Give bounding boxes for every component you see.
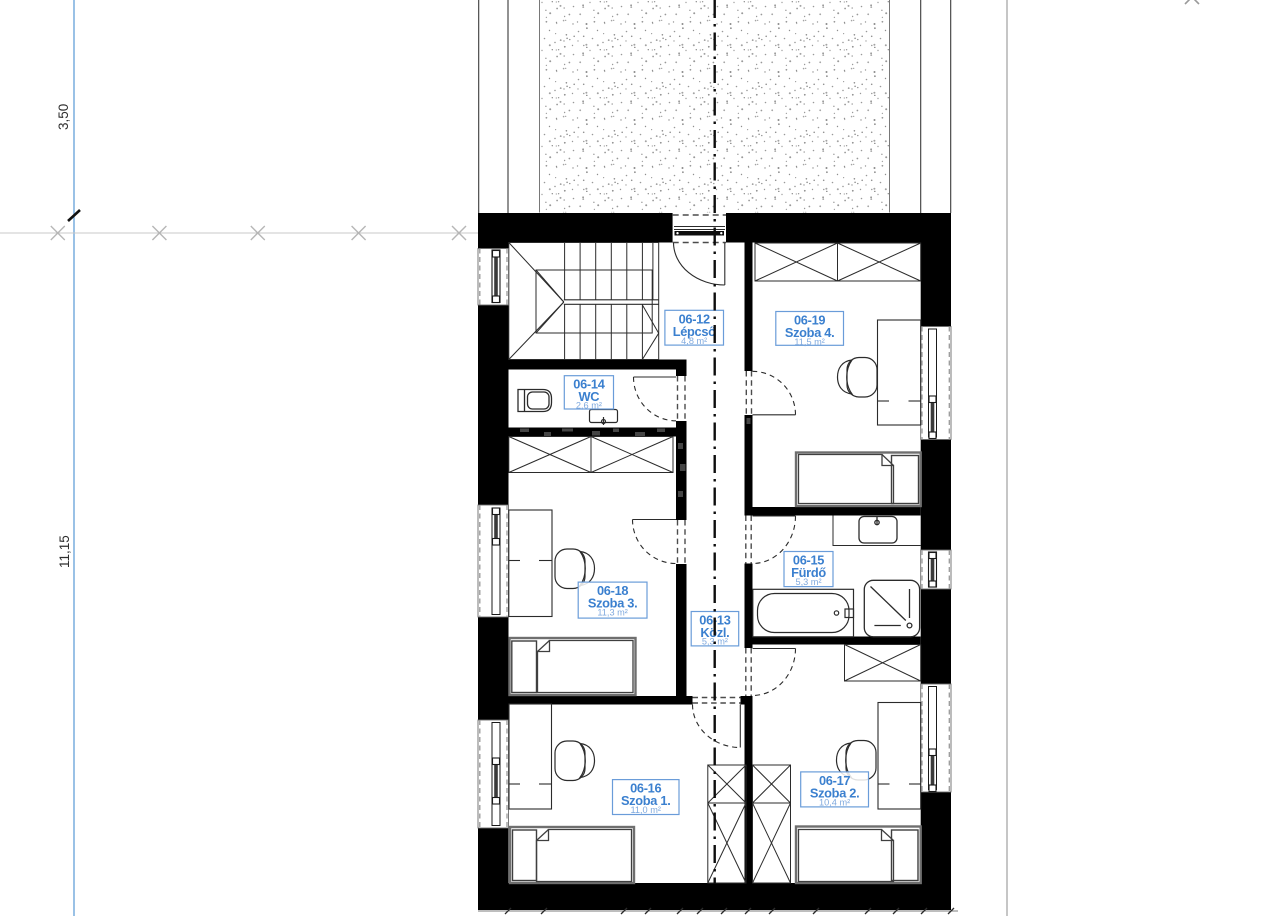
svg-text:4,8 m²: 4,8 m² (681, 336, 707, 346)
svg-text:10,4 m²: 10,4 m² (819, 797, 850, 807)
svg-text:11,0 m²: 11,0 m² (630, 805, 660, 815)
svg-text:3,50: 3,50 (56, 104, 71, 130)
svg-text:5,3 m²: 5,3 m² (795, 577, 821, 587)
svg-text:2,6 m²: 2,6 m² (576, 401, 602, 411)
svg-text:11,3 m²: 11,3 m² (597, 608, 627, 618)
svg-text:11,15: 11,15 (57, 535, 72, 568)
svg-text:11,5 m²: 11,5 m² (794, 337, 824, 347)
